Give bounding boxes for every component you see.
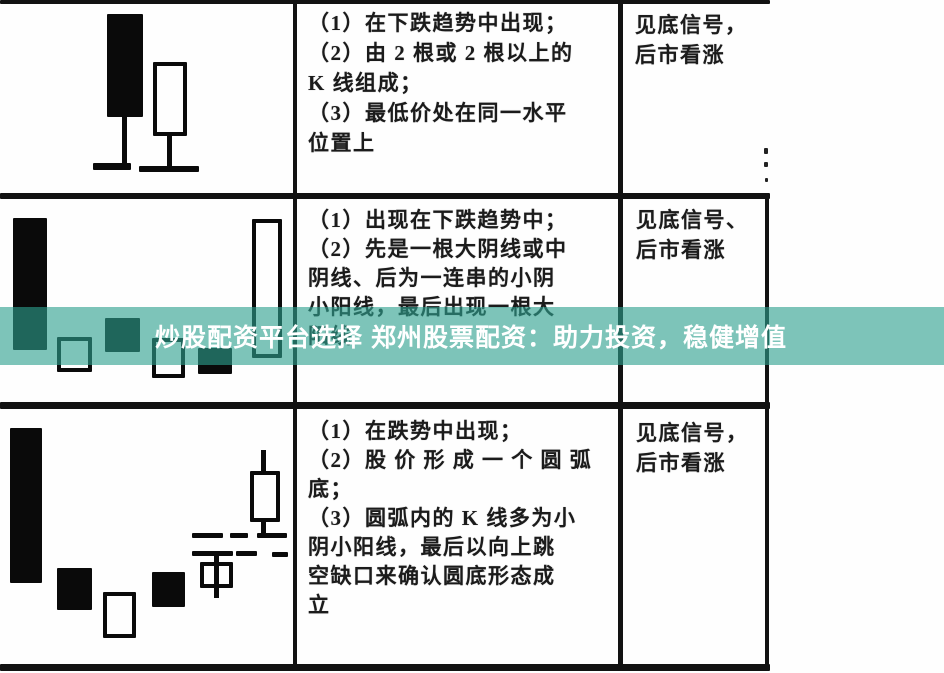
small-bullish-candle — [103, 592, 136, 638]
text-line: 后市看涨 — [636, 235, 776, 265]
scan-speck — [764, 148, 768, 154]
signal-cell-row1: 见底信号，后市看涨 — [635, 10, 775, 70]
text-line: （3）圆弧内的 K 线多为小 — [308, 504, 610, 533]
text-line: （2）由 2 根或 2 根以上的 — [308, 38, 610, 68]
gap-level-dash — [192, 533, 223, 538]
text-line: 后市看涨 — [635, 40, 775, 70]
text-line: 见底信号， — [636, 418, 776, 448]
bearish-candle-body — [107, 14, 143, 117]
text-line: （1）出现在下跌趋势中； — [308, 206, 610, 235]
promo-banner[interactable]: 炒股配资平台选择 郑州股票配资：助力投资，稳健增值 — [0, 307, 944, 365]
scanned-candlestick-table-page: （1）在下跌趋势中出现；（2）由 2 根或 2 根以上的K 线组成；（3）最低价… — [0, 0, 944, 673]
text-line: 阴小阳线，最后以向上跳 — [308, 533, 610, 562]
text-line: （2）先是一根大阴线或中 — [308, 235, 610, 264]
text-line: 见底信号、 — [636, 205, 776, 235]
small-bearish-candle — [57, 568, 92, 610]
candle-low-mark — [93, 163, 131, 170]
candle-low-mark — [139, 166, 199, 172]
text-line: （1）在跌势中出现； — [308, 417, 610, 446]
text-line: 阴线、后为一连串的小阴 — [308, 264, 610, 293]
text-line: 见底信号， — [635, 10, 775, 40]
scan-speck — [765, 178, 768, 182]
candle-lower-wick — [167, 136, 172, 169]
candle-lower-wick — [261, 521, 266, 535]
description-cell-row1: （1）在下跌趋势中出现；（2）由 2 根或 2 根以上的K 线组成；（3）最低价… — [308, 8, 610, 158]
text-line: 后市看涨 — [636, 448, 776, 478]
text-line: （3）最低价处在同一水平 — [308, 98, 610, 128]
text-line: 立 — [308, 591, 610, 620]
text-line: K 线组成； — [308, 68, 610, 98]
text-line: 空缺口来确认圆底形态成 — [308, 562, 610, 591]
table-border-bottom — [0, 664, 770, 671]
table-border-row1-row2 — [0, 193, 770, 199]
gap-level-dash — [236, 551, 257, 556]
text-line: （2）股 价 形 成 一 个 圆 弧 — [308, 446, 610, 475]
candle-lower-wick — [122, 117, 127, 166]
table-border-row2-row3 — [0, 402, 770, 409]
scan-speck — [764, 162, 768, 167]
bearish-candle-body — [10, 428, 42, 583]
candle-upper-wick — [261, 450, 266, 472]
gap-level-dash — [272, 552, 288, 557]
bullish-candle-body — [153, 62, 187, 136]
description-cell-row3: （1）在跌势中出现；（2）股 价 形 成 一 个 圆 弧底；（3）圆弧内的 K … — [308, 417, 610, 620]
text-line: 底； — [308, 475, 610, 504]
gap-level-dash — [192, 551, 233, 556]
bullish-candle-body — [250, 471, 280, 522]
small-bearish-candle — [152, 572, 185, 607]
text-line: （1）在下跌趋势中出现； — [308, 8, 610, 38]
table-border-top — [0, 0, 770, 4]
text-line: 位置上 — [308, 128, 610, 158]
gap-level-dash — [230, 533, 248, 538]
signal-cell-row3: 见底信号，后市看涨 — [636, 418, 776, 478]
doji-candle-wick — [214, 553, 219, 598]
promo-banner-text[interactable]: 炒股配资平台选择 郑州股票配资：助力投资，稳健增值 — [0, 318, 787, 354]
signal-cell-row2: 见底信号、后市看涨 — [636, 205, 776, 265]
